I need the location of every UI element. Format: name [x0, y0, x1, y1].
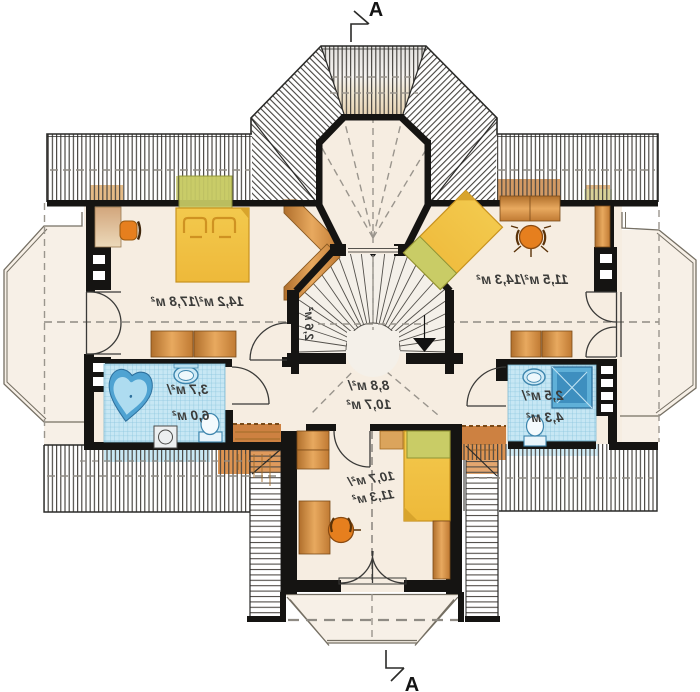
- svg-text:4,3 м²: 4,3 м²: [526, 410, 565, 425]
- svg-text:11,5 м²/14,3 м²: 11,5 м²/14,3 м²: [476, 272, 568, 287]
- svg-text:A: A: [405, 674, 419, 692]
- svg-text:10,7 м²: 10,7 м²: [346, 397, 391, 412]
- svg-text:6,0 м²: 6,0 м²: [172, 408, 210, 423]
- svg-text:8,8 м²/: 8,8 м²/: [347, 378, 389, 393]
- svg-text:3,7 м²/: 3,7 м²/: [166, 382, 208, 397]
- svg-text:A: A: [369, 0, 383, 21]
- svg-text:2,5 м²/: 2,5 м²/: [521, 388, 564, 403]
- svg-text:14,2 м²/17,8 м²: 14,2 м²/17,8 м²: [151, 294, 244, 309]
- svg-text:2,6 м²: 2,6 м²: [302, 307, 316, 342]
